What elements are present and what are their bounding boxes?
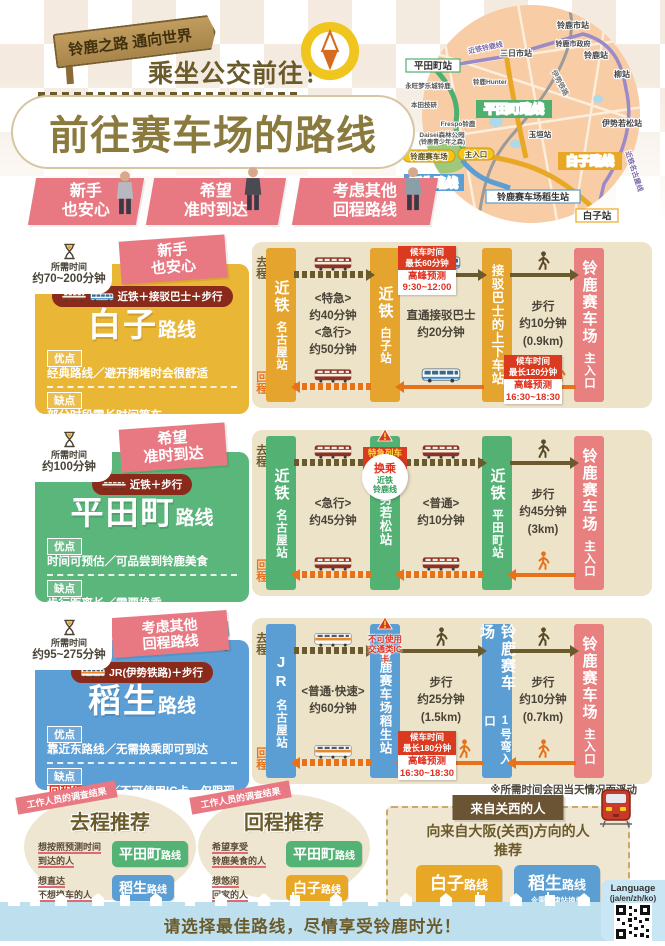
segment-train: <急行>约45分钟 xyxy=(296,436,370,590)
train-icon xyxy=(314,368,352,383)
footer-message: 请选择最佳路线，尽情享受铃鹿时光！ xyxy=(90,913,535,937)
train-icon xyxy=(422,444,460,459)
walker-icon xyxy=(535,439,551,459)
pros-text: 靠近东路线／无需换乘即可到达 xyxy=(47,744,237,758)
map-station-box-inou: 铃鹿赛车场稻生站 xyxy=(486,190,580,203)
outbound-arrow xyxy=(400,632,482,658)
segment-times: <特急>约40分钟<急行>约50分钟 xyxy=(296,291,370,360)
outbound-arrow xyxy=(512,632,574,658)
map-label: 伊势若松站 xyxy=(601,118,642,128)
map-label: (铃鹿青少年之森) xyxy=(419,138,465,146)
map-station-box-hiratacho: 平田町站 xyxy=(406,59,460,72)
segment-times: 步行约45分钟(3km) xyxy=(512,487,574,539)
map-label: 永旺梦乐城铃鹿 xyxy=(404,81,451,90)
return-arrow xyxy=(512,556,574,582)
duration-box: 所需时间 约100分钟 xyxy=(26,424,112,482)
pros-text: 时间可预估／可品尝到铃鹿美食 xyxy=(47,556,237,570)
route-name: 平田町路线 xyxy=(35,496,249,536)
language-box: Language (ja/en/zh/ko) xyxy=(601,880,665,941)
mode-text: JR(伊势铁路)＋步行 xyxy=(109,665,203,680)
qr-code xyxy=(614,903,652,941)
route-section-shiroko: 所需时间 约70~200分钟 新手也安心 近铁＋接驳巴士＋步行 白子路线 优点 … xyxy=(0,236,665,424)
map-circuit-oval: 铃鹿赛车场 xyxy=(403,150,455,162)
title-banner: 前往赛车场的路线 xyxy=(16,100,410,164)
segment-times: 步行约10分钟(0.9km) xyxy=(512,299,574,351)
warning-icon xyxy=(377,616,393,630)
route-diagram: 去程 回程 近铁名古屋站 近铁白子站 接驳巴士的上下车站 铃鹿赛车场主入口 <特… xyxy=(252,242,652,408)
return-arrow xyxy=(296,368,370,394)
outbound-arrow xyxy=(296,256,370,282)
map-route-chip-hiratacho: 平田町路线 xyxy=(476,100,552,118)
map-label: 铃鹿市政府 xyxy=(556,39,591,48)
return-arrow xyxy=(400,368,482,394)
segment-walk: 步行约10分钟(0.9km) 候车时间最长120分钟 高峰预测16:30~18:… xyxy=(512,248,574,402)
hourglass-icon xyxy=(63,431,76,448)
svg-text:白子路线: 白子路线 xyxy=(566,153,614,168)
person-illustration xyxy=(240,166,266,214)
return-arrow xyxy=(400,556,482,582)
duration-value: 约100分钟 xyxy=(42,461,96,474)
map-route-chip-shiroko: 白子路线 xyxy=(558,152,622,170)
walker-icon xyxy=(456,739,472,759)
map-label: 玉垣站 xyxy=(529,129,552,139)
recommend-outbound: 工作人员的调查结果 去程推荐 想按照预测时间到达的人 平田町路线 想直达不想换车… xyxy=(24,794,196,900)
map-label: 本田技研 xyxy=(411,100,438,109)
language-options: (ja/en/zh/ko) xyxy=(601,894,665,903)
page-title: 前往赛车场的路线 xyxy=(49,103,377,161)
person-illustration xyxy=(112,170,138,218)
outbound-arrow xyxy=(400,444,482,470)
svg-text:平田町站: 平田町站 xyxy=(414,60,453,72)
wait-time-badge: 候车时间最长120分钟 高峰预测16:30~18:30 xyxy=(504,355,562,404)
map-label: 三日市站 xyxy=(500,48,532,58)
map-label: Daisei森林公园 xyxy=(419,130,465,139)
svg-text:平田町路线: 平田町路线 xyxy=(484,101,544,116)
language-label: Language xyxy=(601,883,665,894)
svg-text:铃鹿赛车场: 铃鹿赛车场 xyxy=(410,151,448,161)
compass-icon xyxy=(299,20,361,87)
map-line-label: 近铁名古屋线 xyxy=(624,150,646,193)
segment-times: <急行>约45分钟 xyxy=(296,496,370,531)
mode-text: 近铁＋接驳巴士＋步行 xyxy=(118,289,223,304)
duration-value: 约95~275分钟 xyxy=(32,649,105,662)
train-icon xyxy=(102,480,126,490)
hourglass-icon xyxy=(63,619,76,636)
route-tag: 新手也安心 xyxy=(119,234,228,284)
pros-label: 优点 xyxy=(47,350,82,367)
train-icon xyxy=(314,256,352,271)
duration-box: 所需时间 约70~200分钟 xyxy=(26,236,112,294)
return-arrow xyxy=(296,744,370,770)
segment-walk: 步行约25分钟(1.5km) 候车时间最长180分钟 高峰预测16:30~18:… xyxy=(400,624,482,778)
divider xyxy=(47,386,237,388)
map-station-box-shiroko: 白子站 xyxy=(576,209,618,222)
duration-label: 所需时间 xyxy=(51,260,87,273)
train-front-icon xyxy=(598,788,634,828)
return-arrow xyxy=(512,744,574,770)
svg-text:铃鹿赛车场稻生站: 铃鹿赛车场稻生站 xyxy=(497,191,569,202)
walker-icon xyxy=(535,627,551,647)
route-name: 稻生路线 xyxy=(35,684,249,724)
map-label: 铃鹿市站 xyxy=(557,20,589,30)
duration-value: 约70~200分钟 xyxy=(32,273,105,286)
recommend-return: 工作人员的调查结果 回程推荐 希望享受铃鹿美食的人 平田町路线 想悠闲回家的人 … xyxy=(198,794,370,900)
mode-text: 近铁＋步行 xyxy=(130,477,183,492)
walker-icon xyxy=(535,251,551,271)
map-label: 铃鹿Hunter xyxy=(473,77,507,86)
area-map: 铃鹿市站 三日市站 铃鹿市政府 铃鹿站 柳站 伊势若松站 玉垣站 永旺梦乐城铃鹿… xyxy=(398,4,663,226)
route-section-inou: 所需时间 约95~275分钟 考虑其他回程路线 JR(伊势铁路)＋步行 稻生路线… xyxy=(0,612,665,800)
condition-text: 希望享受铃鹿美食的人 xyxy=(212,840,282,869)
kansai-text: 向来自大阪(关西)方向的人推荐 xyxy=(388,822,628,860)
person-illustration xyxy=(400,166,426,214)
warning-icon xyxy=(377,428,393,442)
outbound-arrow xyxy=(512,256,574,282)
recommend-item: 想按照预测时间到达的人 平田町路线 xyxy=(38,840,196,869)
route-tag: 希望准时到达 xyxy=(119,422,228,472)
walker-icon xyxy=(433,627,449,647)
svg-text:白子站: 白子站 xyxy=(583,210,612,222)
segment-walk: 步行约10分钟(0.7km) xyxy=(512,624,574,778)
divider xyxy=(47,762,237,764)
route-chip: 平田町路线 xyxy=(112,841,188,867)
outbound-arrow xyxy=(512,444,574,470)
duration-box: 所需时间 约95~275分钟 xyxy=(26,612,112,670)
train-icon xyxy=(314,744,352,759)
pros-cons: 优点 经典路线／避开拥堵时会很舒适 缺点 部分时段需长时间等车 xyxy=(35,348,249,424)
train-icon xyxy=(314,444,352,459)
bus-icon xyxy=(421,367,461,383)
train-icon xyxy=(314,632,352,647)
recommend-title: 回程推荐 xyxy=(198,806,370,835)
segment-times: 步行约25分钟(1.5km) xyxy=(400,675,482,727)
cons-label: 缺点 xyxy=(47,392,82,409)
map-label: 柳站 xyxy=(614,69,630,79)
segment-times: <普通>约10分钟 xyxy=(400,496,482,531)
condition-text: 想按照预测时间到达的人 xyxy=(38,840,108,869)
map-label: 铃鹿站 xyxy=(584,50,608,60)
kansai-banner: 来自关西的人 xyxy=(452,795,563,820)
divider xyxy=(47,574,237,576)
footer-bar: 请选择最佳路线，尽情享受铃鹿时光！ xyxy=(0,902,665,941)
route-section-hiratacho: 所需时间 约100分钟 希望准时到达 近铁＋步行 平田町路线 优点 时间可预估／… xyxy=(0,424,665,612)
recommend-title: 去程推荐 xyxy=(24,806,196,835)
wait-time-badge: 候车时间最长60分钟 高峰预测9:30~12:00 xyxy=(398,246,456,295)
segment-bus: 候车时间最长60分钟 高峰预测9:30~12:00 直通接驳巴士约20分钟 xyxy=(400,248,482,402)
pros-cons: 优点 时间可预估／可品尝到铃鹿美食 缺点 步行距离长／需要换乘 xyxy=(35,536,249,612)
wait-time-badge: 候车时间最长180分钟 高峰预测16:30~18:30 xyxy=(398,731,456,780)
cons-text: 步行距离长／需要换乘 xyxy=(47,598,237,612)
transfer-badge: 换乘 近铁 铃鹿线 xyxy=(362,454,408,500)
segment-times: 步行约10分钟(0.7km) xyxy=(512,675,574,727)
duration-label: 所需时间 xyxy=(51,448,87,461)
route-tag: 考虑其他回程路线 xyxy=(111,610,230,658)
map-label: Frespo铃鹿 xyxy=(441,119,476,128)
warning-badge: 不可使用交通类IC卡 xyxy=(362,616,408,664)
cons-label: 缺点 xyxy=(47,768,82,785)
route-name: 白子路线 xyxy=(35,308,249,348)
dotted-divider xyxy=(38,92,300,98)
pros-label: 优点 xyxy=(47,726,82,743)
segment-times: <普通·快速>约60分钟 xyxy=(296,684,370,719)
return-arrow xyxy=(296,556,370,582)
pros-label: 优点 xyxy=(47,538,82,555)
outbound-arrow xyxy=(296,444,370,470)
route-diagram: 去程 回程 特急列车不停靠 换乘 近铁 铃鹿线 近铁名古屋站 伊势若松站 近铁平… xyxy=(252,430,652,596)
station-column: 近铁名古屋站 xyxy=(266,436,296,590)
map-main-gate-oval: 主入口 xyxy=(458,148,494,160)
cons-label: 缺点 xyxy=(47,580,82,597)
outbound-arrow xyxy=(296,632,370,658)
segment-times: 直通接驳巴士约20分钟 xyxy=(400,308,482,343)
walker-icon xyxy=(535,551,551,571)
train-icon xyxy=(422,556,460,571)
svg-text:主入口: 主入口 xyxy=(465,149,488,159)
recommend-item: 希望享受铃鹿美食的人 平田町路线 xyxy=(212,840,370,869)
pros-text: 经典路线／避开拥堵时会很舒适 xyxy=(47,368,237,382)
hourglass-icon xyxy=(63,243,76,260)
station-column: JR名古屋站 xyxy=(266,624,296,778)
segment-train: <普通·快速>约60分钟 xyxy=(296,624,370,778)
station-column: 近铁名古屋站 xyxy=(266,248,296,402)
segment-walk: 步行约45分钟(3km) xyxy=(512,436,574,590)
train-icon xyxy=(314,556,352,571)
houses-decoration xyxy=(0,891,665,906)
segment-train: <普通>约10分钟 xyxy=(400,436,482,590)
route-diagram: 去程 回程 不可使用交通类IC卡 JR名古屋站 铃鹿赛车场稻生站 铃鹿赛车场1号… xyxy=(252,618,652,784)
segment-train: <特急>约40分钟<急行>约50分钟 xyxy=(296,248,370,402)
duration-label: 所需时间 xyxy=(51,636,87,649)
route-chip: 平田町路线 xyxy=(286,841,362,867)
walker-icon xyxy=(535,739,551,759)
